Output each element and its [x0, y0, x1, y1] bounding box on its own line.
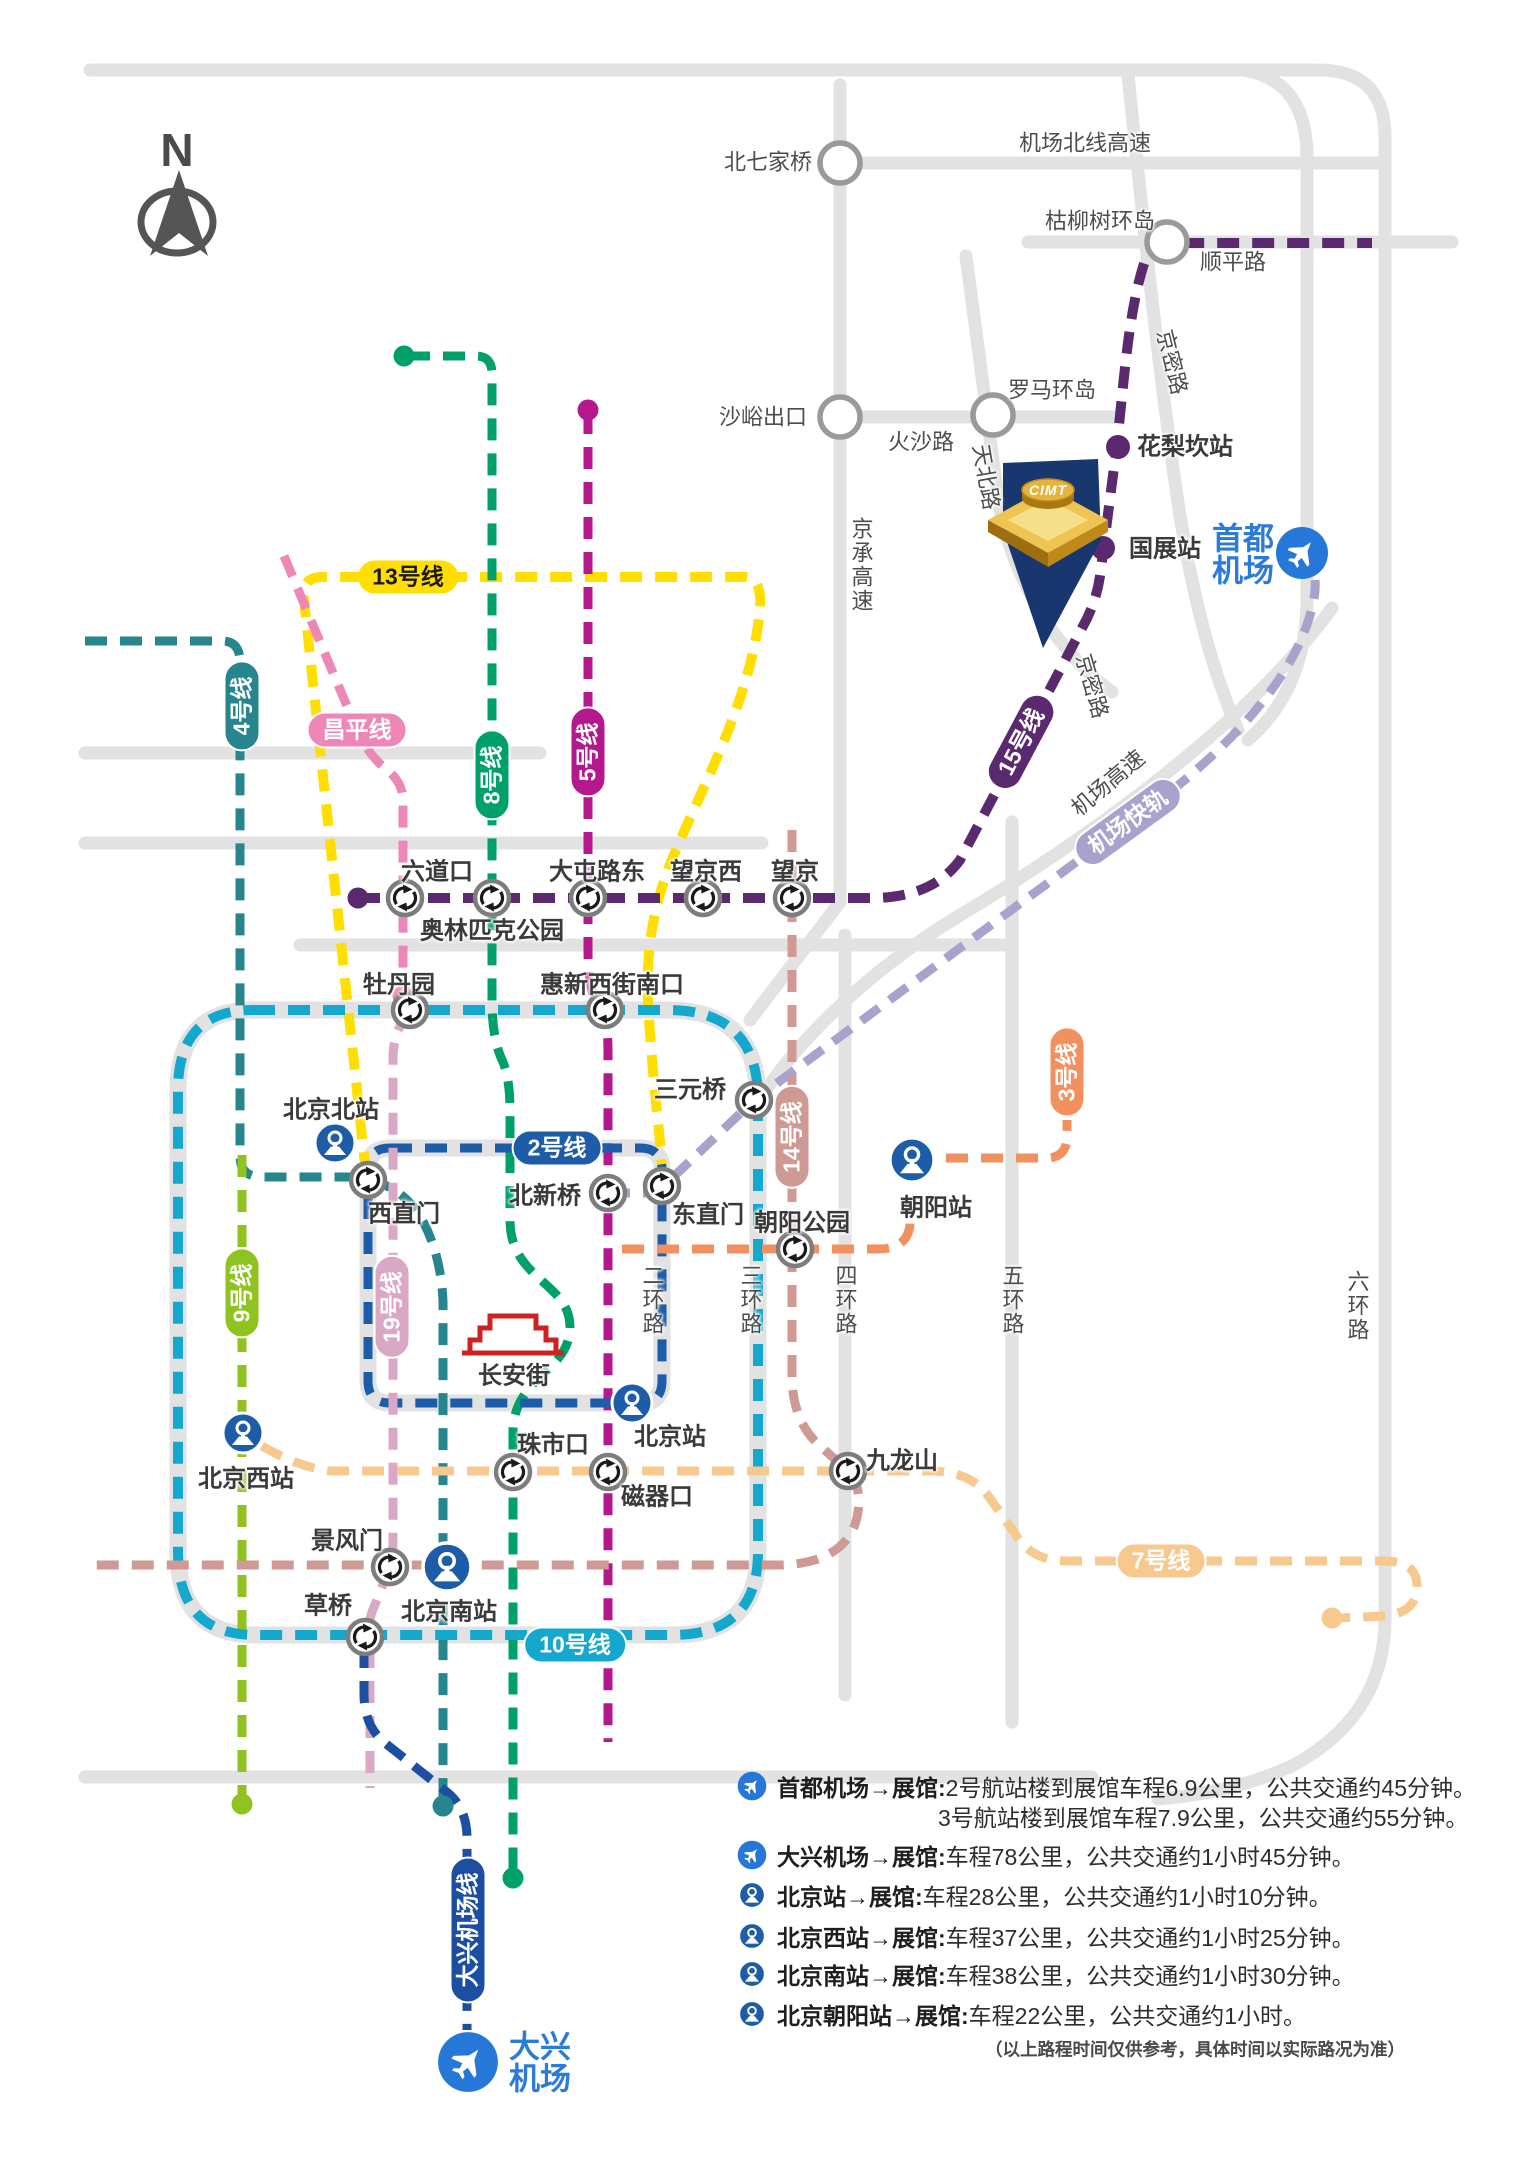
station-label-beijingbei: 北京北站: [283, 1097, 379, 1122]
legend-row-2-title: 大兴机场→展馆:: [777, 1844, 946, 1870]
station-label-kuliushu: 枯柳树环岛: [1045, 209, 1155, 232]
station-label-dongzhimen: 东直门: [672, 1202, 744, 1227]
wangjingxi-interchange-icon: [686, 881, 720, 915]
datunludong-interchange-icon: [571, 881, 605, 915]
beijingbei-rail-icon: [315, 1123, 355, 1163]
station-label-zhushikou: 珠市口: [517, 1432, 589, 1457]
station-label-beixinqiao: 北新桥: [509, 1183, 581, 1208]
legend-row-6: 北京朝阳站→展馆:车程22公里，公共交通约1小时。: [777, 1997, 1306, 2031]
pill-line3: 3号线: [1049, 1027, 1086, 1118]
road-ring3: [178, 1010, 758, 1635]
legend-rail-icon-1: [739, 1882, 765, 1908]
legend-rail-icon-2: [739, 1923, 765, 1949]
road-label-jingcheng: 京承高速: [849, 517, 872, 613]
daxing-airport-label-1: 大兴: [509, 2032, 571, 2065]
station-label-beijingnan: 北京南站: [401, 1599, 497, 1624]
road-label-ring5: 五环路: [1000, 1264, 1023, 1336]
legend-footnote: （以上路程时间仅供参考，具体时间以实际路况为准）: [985, 2037, 1405, 2062]
jingfengmen-interchange-icon: [373, 1550, 407, 1584]
legend-row-4: 北京西站→展馆:车程37公里，公共交通约1小时25分钟。: [777, 1919, 1355, 1953]
pill-line2: 2号线: [512, 1130, 603, 1167]
legend-rail-icon-4: [739, 2001, 765, 2027]
caoqiao-interchange-icon: [348, 1620, 382, 1654]
liudaokou-interchange-icon: [388, 881, 422, 915]
pill-line10: 10号线: [523, 1627, 627, 1664]
line10-path: [178, 1010, 758, 1635]
capital-airport-label-1: 首都: [1212, 524, 1274, 557]
legend-row-3-text: 车程28公里，公共交通约1小时10分钟。: [923, 1884, 1332, 1910]
shayuchukou-junction: [820, 397, 860, 437]
pill-line8: 8号线: [474, 730, 511, 821]
station-label-huixin: 惠新西街南口: [540, 972, 684, 997]
chaoyangpark-interchange-icon: [778, 1232, 812, 1266]
station-label-luoma: 罗马环岛: [1008, 378, 1096, 401]
station-label-beijingxi: 北京西站: [198, 1466, 294, 1491]
pill-line14: 14号线: [774, 1085, 811, 1189]
pill-line9: 9号线: [224, 1248, 261, 1339]
legend-row-5-text: 车程38公里，公共交通约1小时30分钟。: [946, 1963, 1355, 1989]
road-label-shunping: 顺平路: [1200, 250, 1266, 273]
legend-row-6-text: 车程22公里，公共交通约1小时。: [969, 2003, 1306, 2029]
forbidden-city-icon: [462, 1316, 564, 1353]
legend-row-5-title: 北京南站→展馆:: [777, 1963, 946, 1989]
station-label-xizhimen: 西直门: [368, 1201, 440, 1226]
xizhimen-interchange-icon: [351, 1163, 385, 1197]
legend-row-2: 大兴机场→展馆:车程78公里，公共交通约1小时45分钟。: [777, 1838, 1355, 1872]
beixinqiao-interchange-icon: [591, 1176, 625, 1210]
north-compass-icon: [141, 170, 213, 256]
station-label-guozhan: 国展站: [1129, 536, 1201, 561]
station-label-olympic: 奥林匹克公园: [420, 918, 564, 943]
station-label-wangjing: 望京: [771, 859, 819, 884]
beijingxi-rail-icon: [223, 1413, 263, 1453]
station-label-ciqikou: 磁器口: [621, 1484, 693, 1509]
station-label-sanyuanqiao: 三元桥: [654, 1077, 726, 1102]
zhushikou-interchange-icon: [496, 1455, 530, 1489]
legend-row-3-title: 北京站→展馆:: [777, 1884, 923, 1910]
legend-row-1-title: 首都机场→展馆:: [777, 1775, 946, 1801]
legend-row-4-text: 车程37公里，公共交通约1小时25分钟。: [946, 1925, 1355, 1951]
station-label-liudaokou: 六道口: [401, 859, 473, 884]
pill-line4: 4号线: [224, 661, 261, 752]
road-label-ring6: 六环路: [1345, 1270, 1368, 1342]
pill-changping: 昌平线: [307, 712, 408, 749]
venue-logo-text: CIMT: [1029, 482, 1067, 498]
pill-daxing-line: 大兴机场线: [450, 1857, 487, 2004]
legend-row-3: 北京站→展馆:车程28公里，公共交通约1小时10分钟。: [777, 1878, 1332, 1912]
olympic-interchange-icon: [475, 881, 509, 915]
station-label-mudanyuan: 牡丹园: [363, 972, 435, 997]
ciqikou-interchange-icon: [591, 1455, 625, 1489]
road-ring6: [90, 70, 1385, 1799]
legend-row-1-text2: 3号航站楼到展馆车程7.9公里，公共交通约55分钟。: [938, 1805, 1468, 1831]
station-label-beijing: 北京站: [634, 1424, 706, 1449]
station-label-chaoyangpark: 朝阳公园: [754, 1210, 850, 1235]
legend-row-2-text: 车程78公里，公共交通约1小时45分钟。: [946, 1844, 1355, 1870]
road-label-changanjie: 长安街: [478, 1363, 550, 1388]
map-canvas: [0, 0, 1527, 2159]
station-label-hualikan: 花梨坎站: [1137, 434, 1233, 459]
road-label-huosha: 火沙路: [888, 430, 954, 453]
station-label-jiulongshan: 九龙山: [866, 1448, 938, 1473]
north-label: N: [160, 123, 193, 177]
beijing-rail-icon: [612, 1383, 652, 1423]
road-label-ring4: 四环路: [833, 1264, 856, 1336]
pill-line7: 7号线: [1116, 1543, 1207, 1580]
legend-row-6-title: 北京朝阳站→展馆:: [777, 2003, 969, 2029]
station-label-datunludong: 大屯路东: [549, 859, 645, 884]
chaoyang-rail-icon: [890, 1138, 934, 1182]
daxing-airport-label-2: 机场: [509, 2064, 571, 2097]
hualikan-station-dot: [1106, 435, 1130, 459]
road-label-ring3: 三环路: [738, 1264, 761, 1336]
daxing-airport-icon: [438, 2032, 498, 2092]
legend-plane-icon-2: [738, 1841, 767, 1870]
beiqijiaqiao-junction: [820, 143, 860, 183]
road-airport-second: [1243, 70, 1307, 740]
station-label-shayu: 沙峪出口: [719, 405, 807, 428]
legend-row-1b: 3号航站楼到展馆车程7.9公里，公共交通约55分钟。: [938, 1799, 1468, 1833]
pill-line5: 5号线: [570, 707, 607, 798]
line5-path: [588, 412, 608, 1742]
capital-airport-icon: [1276, 527, 1328, 579]
road-label-ring2: 二环路: [640, 1264, 663, 1336]
legend-row-1: 首都机场→展馆:2号航站楼到展馆车程6.9公里，公共交通约45分钟。: [777, 1769, 1476, 1803]
pill-line19: 19号线: [374, 1255, 411, 1359]
station-label-wangjingxi: 望京西: [670, 859, 742, 884]
jiulongshan-interchange-icon: [831, 1454, 865, 1488]
legend-rail-icon-3: [739, 1961, 765, 1987]
capital-airport-label-2: 机场: [1212, 556, 1274, 589]
legend-row-1-text: 2号航站楼到展馆车程6.9公里，公共交通约45分钟。: [946, 1775, 1476, 1801]
station-label-caoqiao: 草桥: [304, 1593, 352, 1618]
station-label-beiqijiaqiao: 北七家桥: [724, 150, 812, 173]
beijingnan-rail-icon: [423, 1543, 471, 1591]
sanyuanqiao-interchange-icon: [737, 1083, 771, 1117]
beijing-transit-map: N CIMT 机场北线高速 顺平路 京密路 京密路 火沙路 天北路 京承高速 机…: [0, 0, 1527, 2159]
station-label-jingfengmen: 景风门: [311, 1528, 383, 1553]
legend-row-4-title: 北京西站→展馆:: [777, 1925, 946, 1951]
road-jingmi: [1128, 75, 1238, 730]
road-label-beixian: 机场北线高速: [1019, 131, 1151, 154]
dongzhimen-interchange-icon: [645, 1169, 679, 1203]
legend-row-5: 北京南站→展馆:车程38公里，公共交通约1小时30分钟。: [777, 1957, 1355, 1991]
legend-plane-icon-1: [738, 1772, 767, 1801]
pill-line13: 13号线: [358, 561, 458, 594]
station-label-chaoyangzhan: 朝阳站: [900, 1195, 972, 1220]
wangjing-interchange-icon: [775, 881, 809, 915]
